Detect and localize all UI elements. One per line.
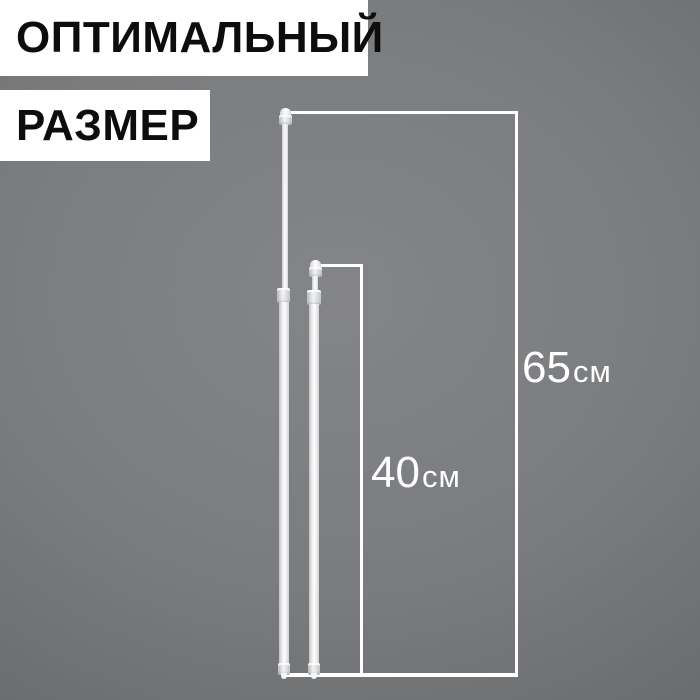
dim-65-unit: см bbox=[573, 356, 612, 387]
short-rod-lower-tube bbox=[309, 304, 319, 664]
short-rod-joint bbox=[307, 290, 321, 305]
banner-optimal: ОПТИМАЛЬНЫЙ bbox=[0, 0, 368, 76]
banner-size: РАЗМЕР bbox=[0, 90, 210, 161]
short-rod-upper-tube bbox=[312, 276, 318, 291]
tall-rod-bottom-tip bbox=[281, 673, 287, 679]
dim-40-label: 40 см bbox=[371, 451, 461, 495]
tall-rod-lower-tube bbox=[279, 302, 289, 664]
banner-size-text: РАЗМЕР bbox=[16, 101, 199, 151]
product-dimension-illustration: 65 см 40 см ОПТИМАЛЬНЫЙ РАЗМЕР bbox=[0, 0, 700, 700]
short-rod-bottom-tip bbox=[311, 673, 317, 679]
dim-40-top-line bbox=[320, 264, 362, 267]
dim-40-value: 40 bbox=[371, 451, 420, 495]
tall-rod-upper-tube bbox=[282, 124, 288, 289]
dim-65-top-line bbox=[290, 111, 517, 114]
dim-40-unit: см bbox=[422, 461, 461, 492]
tall-rod-joint bbox=[277, 288, 290, 303]
dim-65-label: 65 см bbox=[522, 346, 612, 390]
dim-40-right-line bbox=[360, 264, 363, 677]
banner-optimal-text: ОПТИМАЛЬНЫЙ bbox=[16, 13, 384, 63]
dim-65-value: 65 bbox=[522, 346, 571, 390]
dim-65-right-line bbox=[515, 111, 518, 677]
